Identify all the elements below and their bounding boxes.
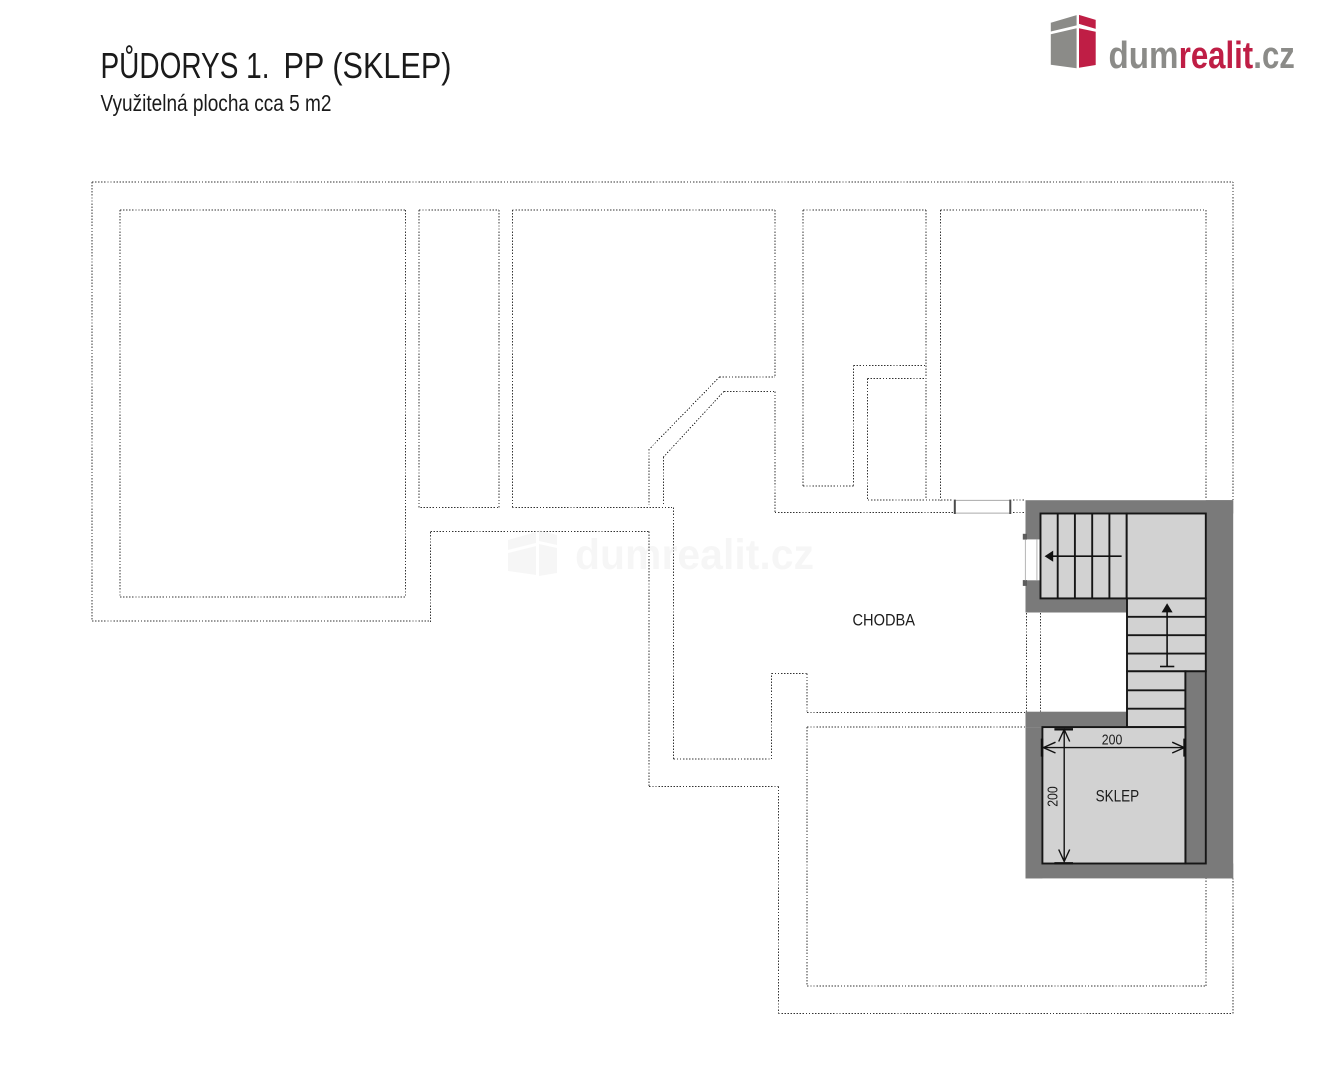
svg-text:200: 200 xyxy=(1046,786,1062,807)
svg-text:Využitelná plocha cca 5 m2: Využitelná plocha cca 5 m2 xyxy=(101,90,332,116)
svg-text:dumrealit.cz: dumrealit.cz xyxy=(575,531,814,579)
svg-text:PP (SKLEP): PP (SKLEP) xyxy=(284,45,452,86)
svg-text:dum: dum xyxy=(1109,35,1179,77)
svg-text:SKLEP: SKLEP xyxy=(1096,787,1140,805)
svg-text:CHODBA: CHODBA xyxy=(853,612,916,630)
svg-text:realit: realit xyxy=(1179,35,1254,77)
svg-text:200: 200 xyxy=(1102,732,1123,748)
svg-text:PŮDORYS 1.: PŮDORYS 1. xyxy=(101,44,270,86)
svg-text:.cz: .cz xyxy=(1253,35,1295,77)
